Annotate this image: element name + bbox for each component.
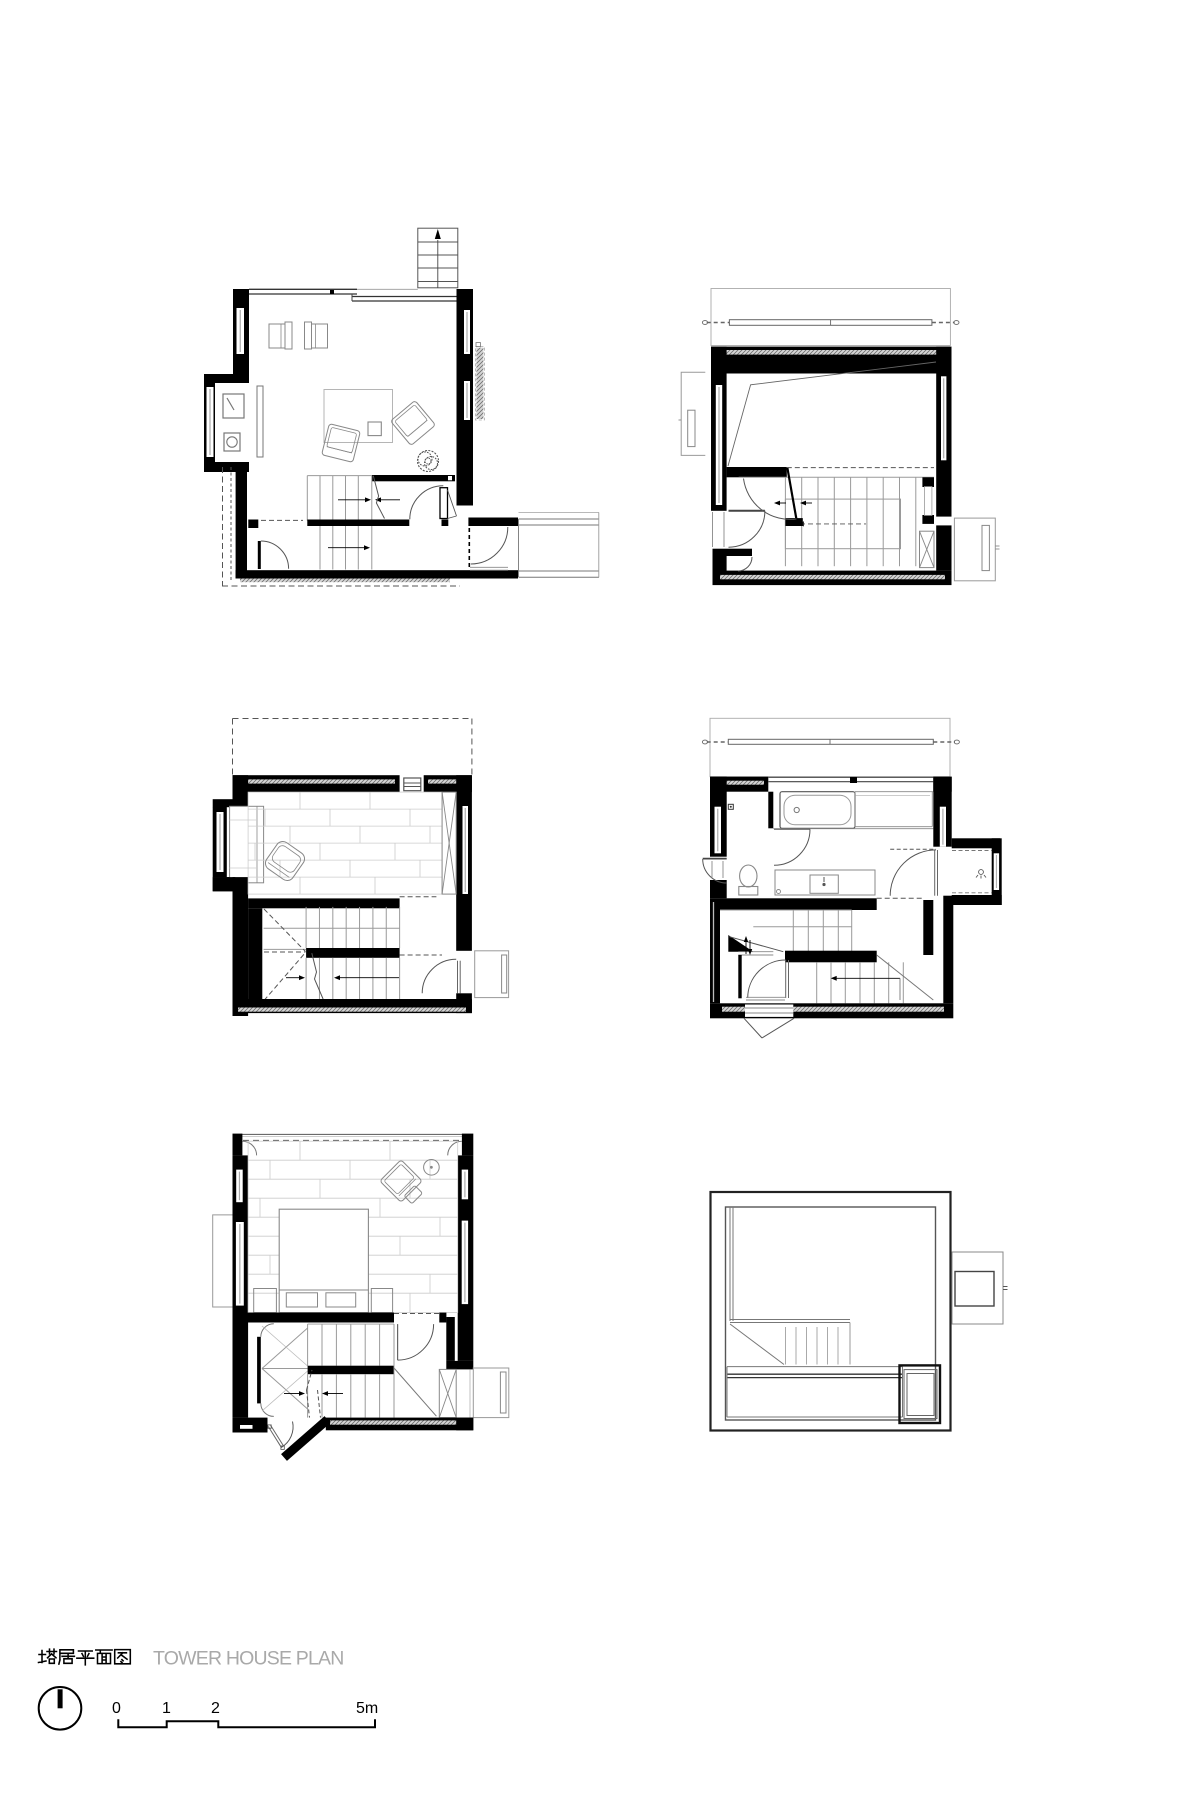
svg-text:5m: 5m bbox=[356, 1700, 378, 1717]
svg-text:TOWER HOUSE PLAN: TOWER HOUSE PLAN bbox=[153, 1648, 344, 1670]
svg-text:2: 2 bbox=[211, 1700, 220, 1717]
svg-text:0: 0 bbox=[112, 1700, 121, 1717]
svg-text:1: 1 bbox=[162, 1700, 171, 1717]
